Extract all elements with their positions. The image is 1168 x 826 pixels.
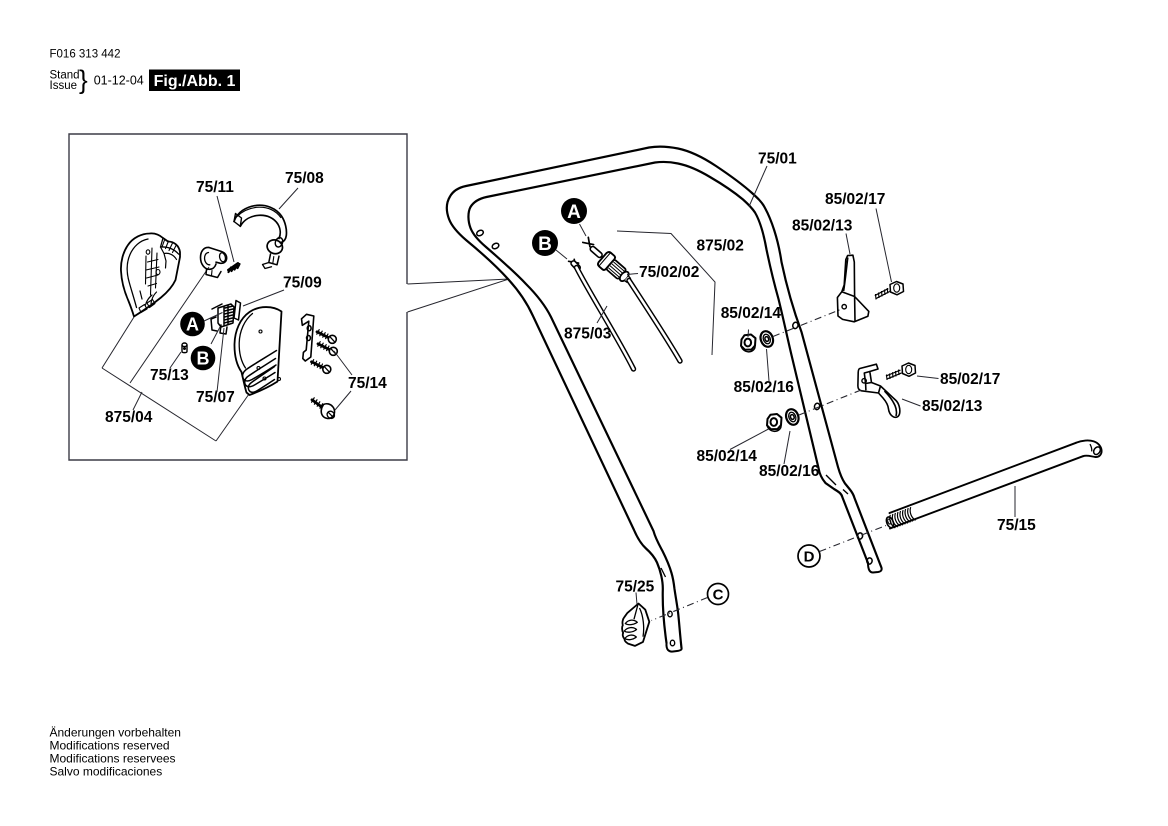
svg-text:75/09: 75/09: [283, 275, 322, 292]
svg-text:875/02: 875/02: [697, 238, 744, 255]
svg-text:01-12-04: 01-12-04: [94, 74, 144, 88]
svg-text:B: B: [538, 234, 552, 255]
svg-text:B: B: [197, 349, 210, 369]
svg-text:85/02/16: 85/02/16: [759, 463, 820, 480]
svg-text:D: D: [804, 549, 815, 566]
svg-text:75/13: 75/13: [150, 367, 189, 384]
svg-text:75/11: 75/11: [196, 179, 234, 196]
svg-text:85/02/14: 85/02/14: [697, 448, 758, 465]
svg-text:75/07: 75/07: [196, 389, 235, 406]
svg-text:C: C: [713, 587, 724, 604]
svg-text:Issue: Issue: [50, 80, 78, 92]
svg-text:875/03: 875/03: [564, 326, 612, 343]
svg-text:Änderungen vorbehalten: Änderungen vorbehalten: [50, 726, 181, 740]
svg-text:85/02/17: 85/02/17: [940, 371, 1000, 388]
svg-text:85/02/16: 85/02/16: [734, 379, 795, 396]
svg-text:75/01: 75/01: [758, 151, 797, 168]
svg-text:F016 313 442: F016 313 442: [50, 49, 121, 61]
svg-text:75/25: 75/25: [616, 579, 655, 596]
svg-text:Fig./Abb. 1: Fig./Abb. 1: [154, 73, 236, 90]
svg-text:85/02/13: 85/02/13: [922, 398, 983, 415]
svg-text:Modifications reservees: Modifications reservees: [50, 752, 176, 766]
svg-text:875/04: 875/04: [105, 409, 153, 426]
svg-text:A: A: [567, 202, 581, 223]
svg-text:75/02/02: 75/02/02: [639, 264, 699, 281]
svg-text:75/14: 75/14: [348, 375, 387, 392]
svg-text:Modifications reserved: Modifications reserved: [50, 739, 170, 753]
svg-text:}: }: [79, 65, 88, 95]
svg-text:75/15: 75/15: [997, 517, 1036, 534]
svg-text:85/02/14: 85/02/14: [721, 305, 782, 322]
svg-text:75/08: 75/08: [285, 170, 324, 187]
svg-text:85/02/17: 85/02/17: [825, 191, 885, 208]
svg-text:Salvo modificaciones: Salvo modificaciones: [50, 765, 163, 779]
svg-text:A: A: [186, 315, 199, 335]
svg-text:85/02/13: 85/02/13: [792, 218, 853, 235]
